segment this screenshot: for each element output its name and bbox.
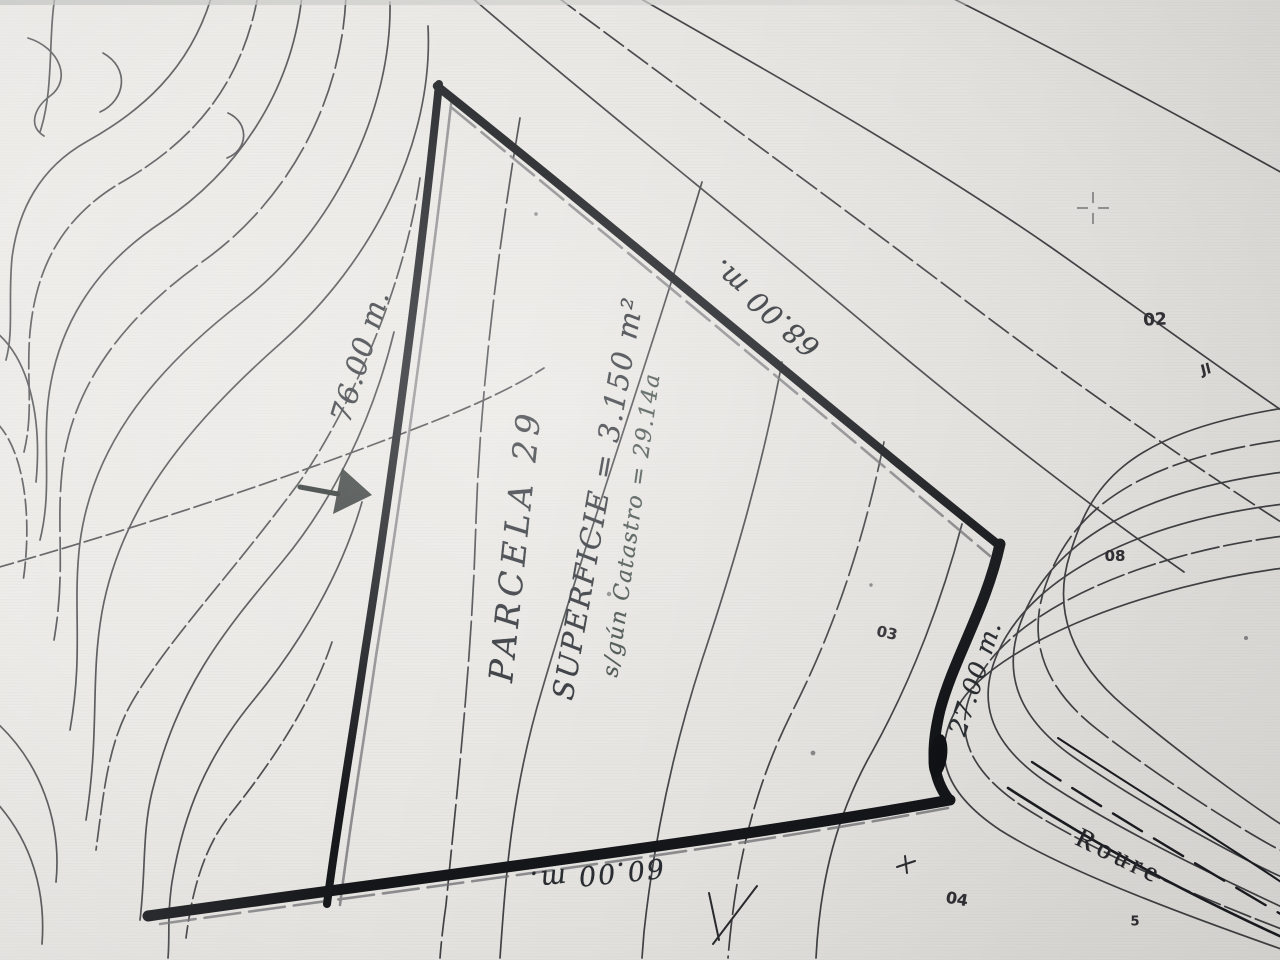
crosshair-icon xyxy=(1077,192,1109,224)
plot-number-08: 08 xyxy=(1105,547,1126,565)
plot-number-5: 5 xyxy=(1130,915,1139,930)
plot-number-02: 02 xyxy=(1143,309,1168,330)
plot-number-04: 04 xyxy=(944,888,969,911)
boundary-ghost xyxy=(160,96,990,924)
road-lines xyxy=(1008,738,1280,938)
cadastral-plan: 76.00 m. PARCELA 29 SUPERFICIE = 3.150 m… xyxy=(0,0,1280,960)
